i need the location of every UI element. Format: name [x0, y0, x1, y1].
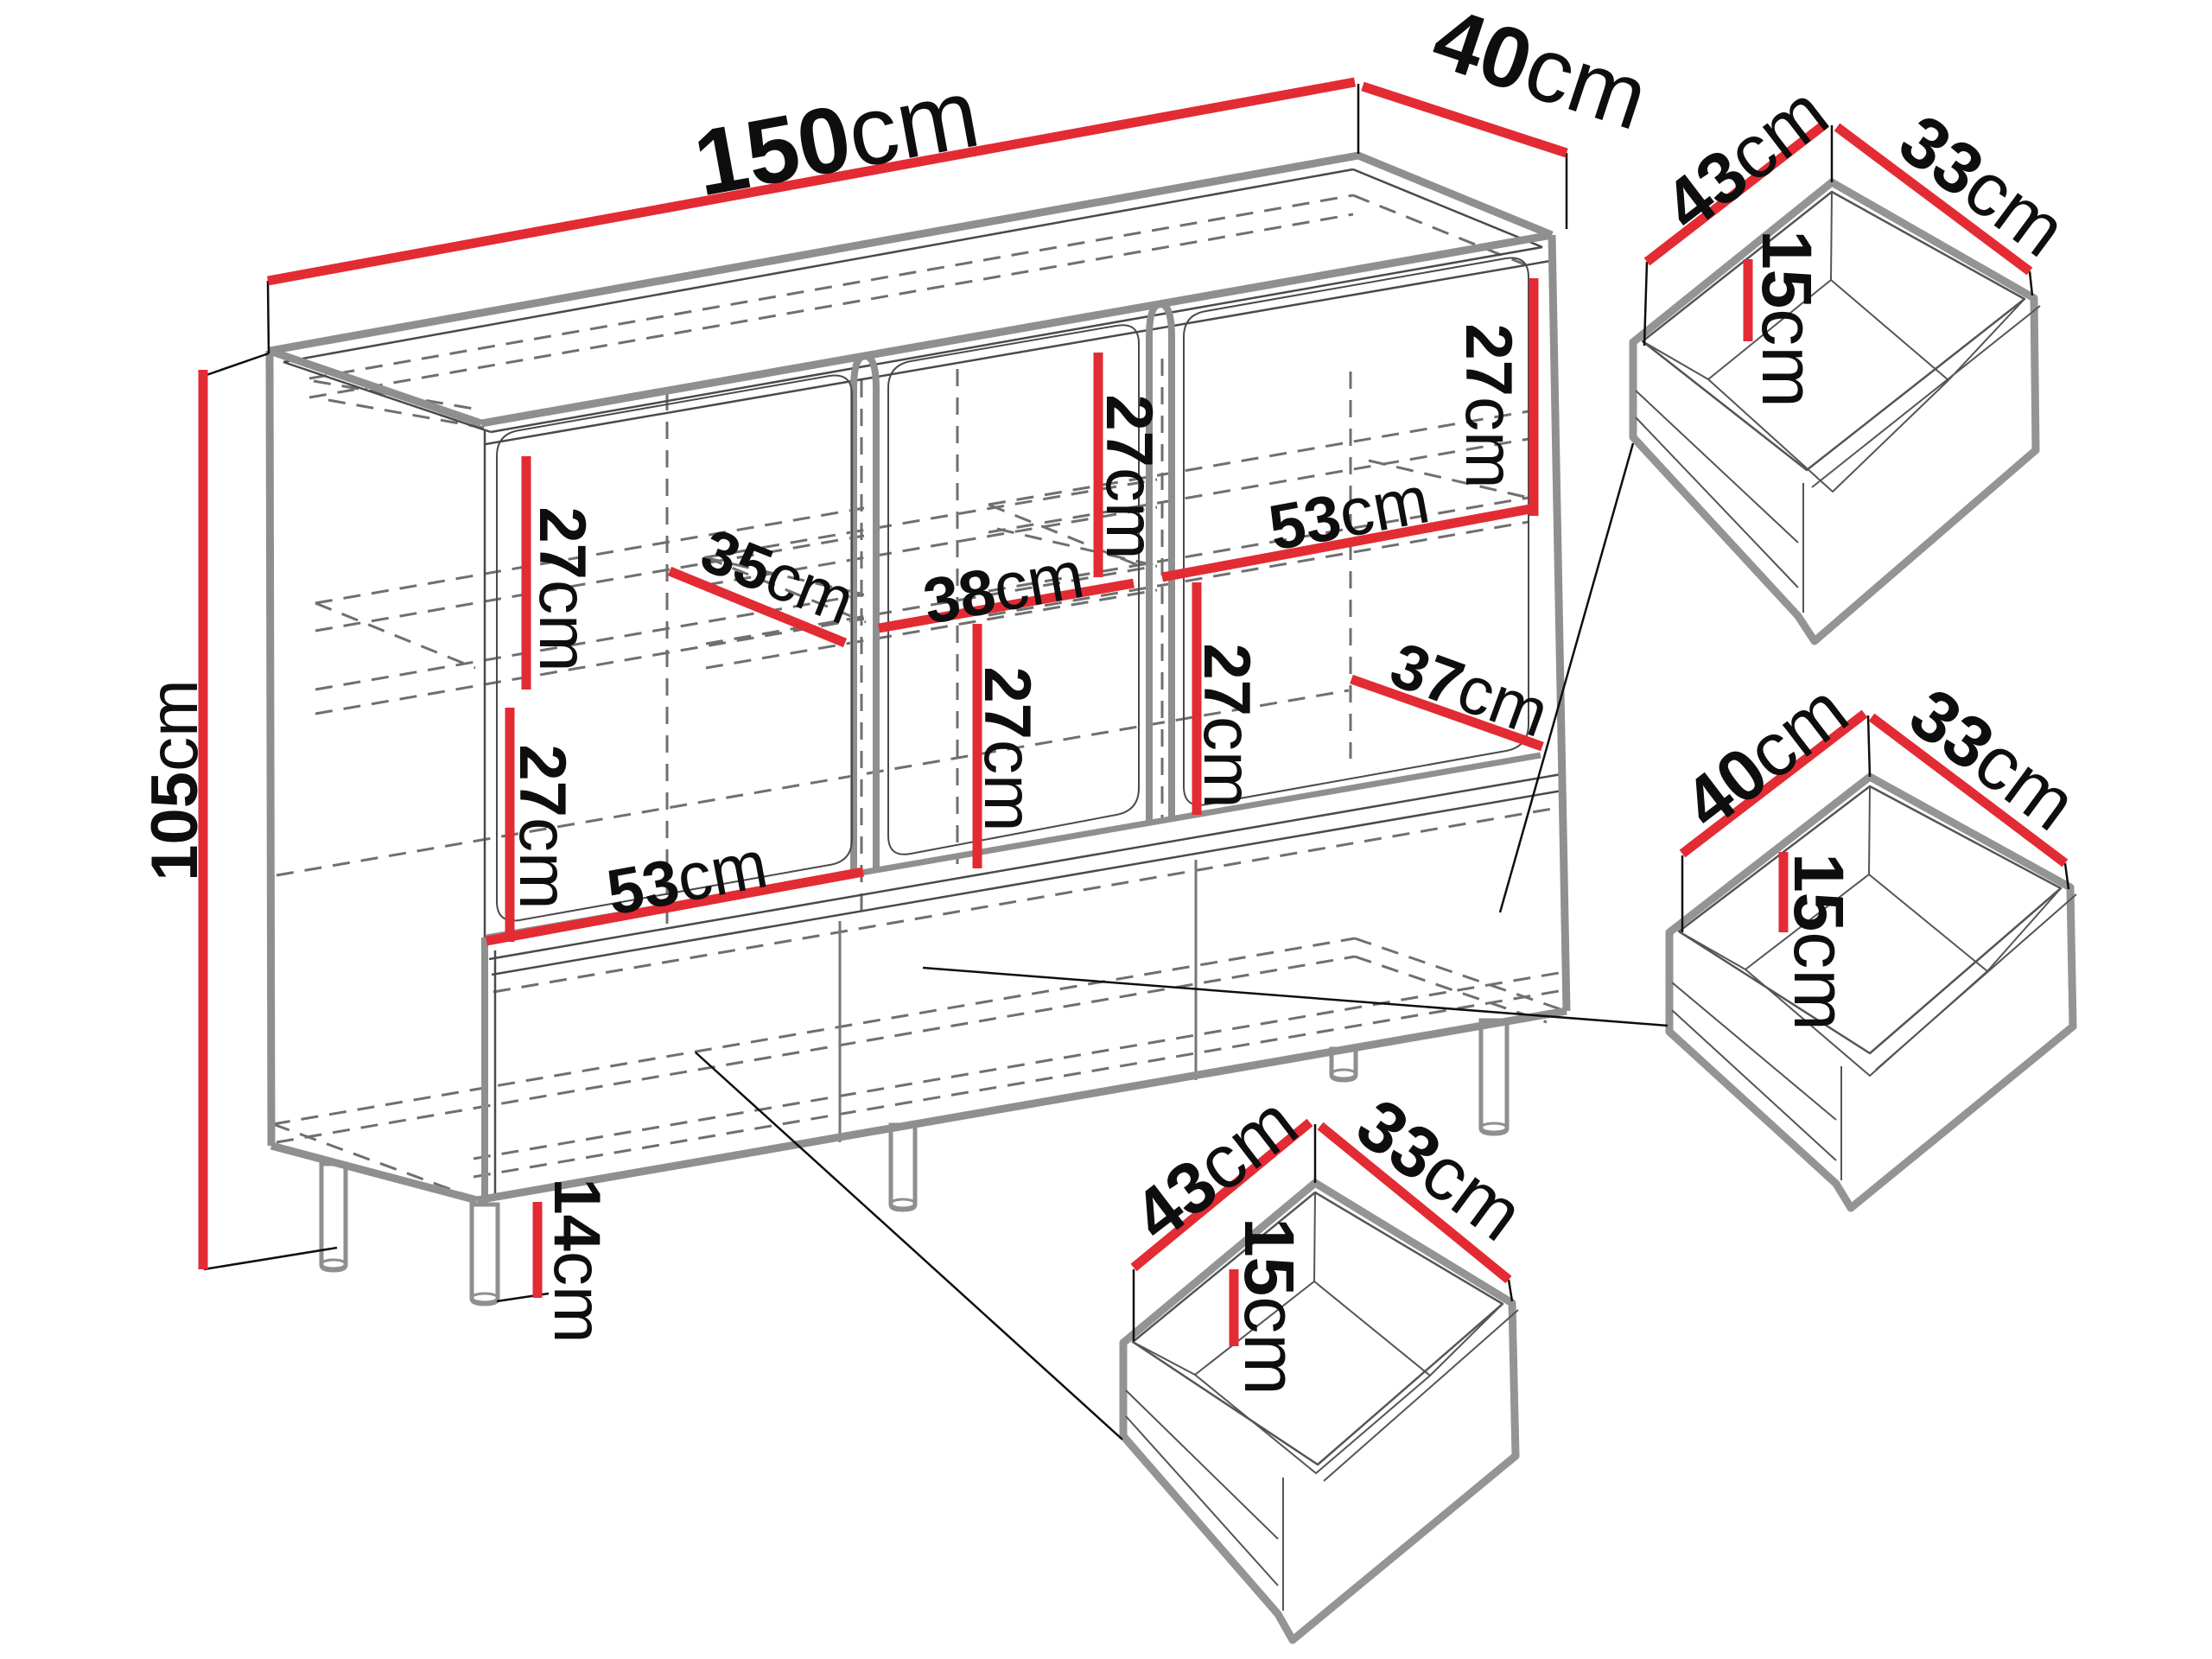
svg-text:15cm: 15cm	[1229, 1217, 1312, 1395]
svg-text:27cm: 27cm	[525, 506, 602, 671]
svg-text:27cm: 27cm	[970, 666, 1047, 831]
svg-text:27cm: 27cm	[1190, 643, 1267, 808]
svg-text:53cm: 53cm	[1262, 461, 1434, 564]
svg-text:14cm: 14cm	[540, 1178, 617, 1343]
svg-text:27cm: 27cm	[1452, 323, 1529, 488]
svg-text:27cm: 27cm	[1092, 394, 1169, 559]
svg-text:37cm: 37cm	[1382, 625, 1559, 751]
svg-text:150cm: 150cm	[686, 58, 987, 217]
svg-text:40cm: 40cm	[1421, 0, 1659, 149]
svg-text:38cm: 38cm	[918, 536, 1090, 639]
svg-text:15cm: 15cm	[1778, 853, 1861, 1031]
svg-text:27cm: 27cm	[505, 744, 582, 909]
svg-text:105cm: 105cm	[135, 679, 212, 880]
svg-text:15cm: 15cm	[1746, 230, 1829, 408]
